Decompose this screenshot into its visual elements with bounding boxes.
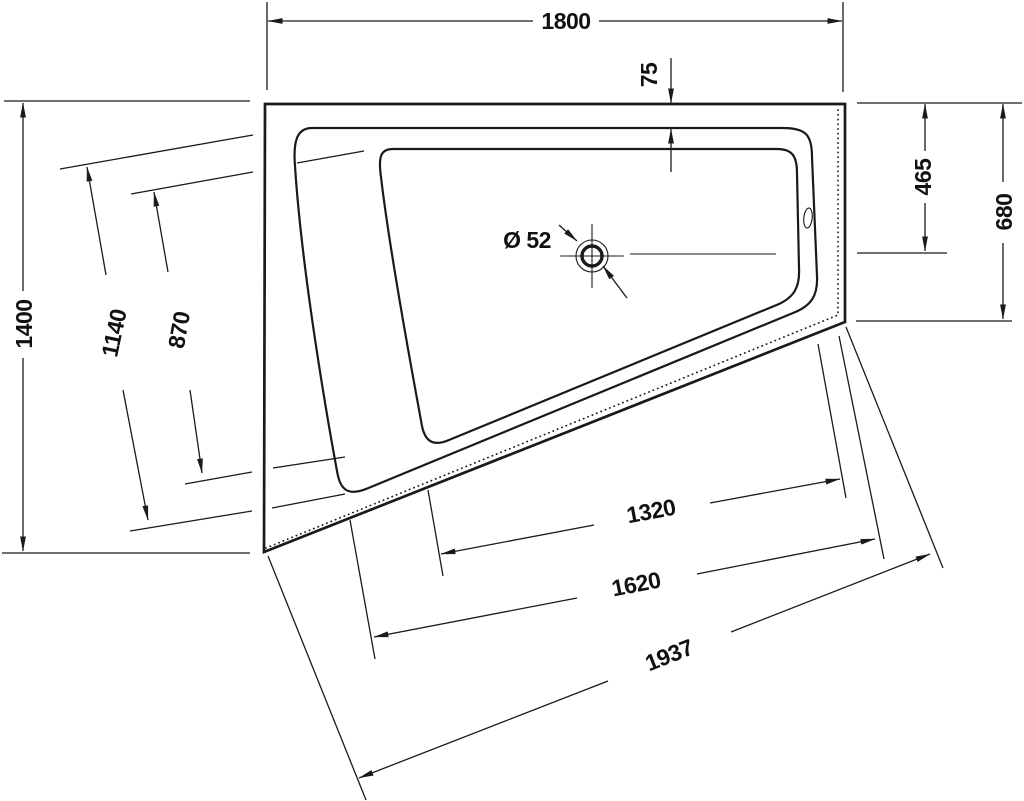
dimension-line	[731, 554, 930, 632]
dimension-label: 75	[636, 62, 662, 87]
drain-leader-upper	[559, 225, 577, 241]
extension-line	[185, 472, 252, 484]
dimension-1800: 1800	[267, 2, 843, 92]
dimension-label: 1800	[541, 8, 590, 34]
dimension-label: 1140	[96, 307, 131, 359]
dimension-line	[154, 192, 168, 272]
dimension-line	[710, 479, 840, 503]
overflow-icon	[803, 208, 813, 229]
dimension-1937: 1937	[268, 327, 943, 800]
dimension-label: 1937	[641, 634, 696, 676]
dimension-line	[123, 390, 148, 520]
dimension-label: 465	[910, 158, 936, 196]
tub-basin-edge	[380, 149, 799, 443]
dimension-label: 1620	[609, 567, 662, 602]
extension-line	[846, 327, 943, 568]
dimension-1320: 1320	[428, 344, 846, 576]
bathtub-outline	[264, 104, 845, 552]
technical-drawing-page: Ø 52 1800 75 1400 1140 87	[0, 0, 1024, 801]
dimension-680: 680	[856, 104, 1017, 321]
extension-line	[272, 494, 345, 508]
dimension-1140: 1140	[60, 135, 345, 531]
extension-line	[273, 457, 345, 468]
drain-leader-lower	[603, 266, 627, 298]
extension-line	[297, 151, 364, 163]
dimension-line	[359, 681, 608, 778]
dimension-line	[374, 598, 577, 637]
extension-line	[839, 336, 884, 559]
extension-line	[131, 172, 253, 194]
extension-line	[268, 556, 366, 800]
dimension-label: 1400	[11, 299, 37, 348]
technical-drawing-canvas: Ø 52 1800 75 1400 1140 87	[0, 0, 1024, 801]
extension-line	[818, 344, 846, 498]
dimension-label: 870	[163, 310, 195, 351]
dimension-line	[441, 525, 594, 554]
dimension-label: 680	[991, 194, 1017, 231]
dimension-line	[87, 167, 106, 275]
dimension-label-drain: Ø 52	[503, 227, 551, 253]
extension-line	[60, 135, 253, 169]
dimension-75: 75	[636, 58, 671, 172]
dimension-label: 1320	[624, 494, 677, 529]
dimension-870: 870	[131, 151, 364, 484]
drain-symbol: Ø 52	[503, 224, 776, 298]
dimension-line	[697, 539, 875, 574]
extension-line	[130, 511, 252, 531]
extension-line	[350, 520, 375, 659]
dimension-line	[190, 390, 202, 473]
extension-line	[428, 490, 443, 576]
